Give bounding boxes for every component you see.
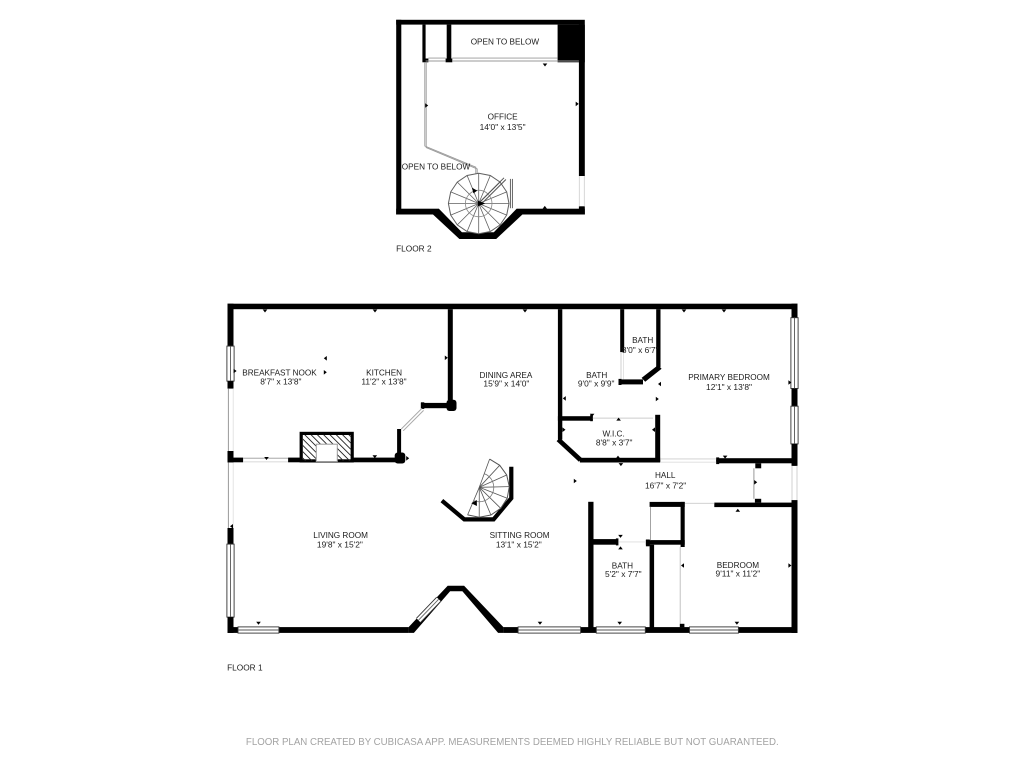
svg-text:19'8" x 15'2": 19'8" x 15'2": [317, 539, 363, 549]
svg-text:9'11" x 11'2": 9'11" x 11'2": [716, 569, 761, 579]
svg-text:8'7" x 13'8": 8'7" x 13'8": [260, 376, 301, 386]
svg-text:HALL: HALL: [655, 471, 676, 480]
svg-text:16'7" x 7'2": 16'7" x 7'2": [645, 480, 686, 490]
svg-text:13'1" x 15'2": 13'1" x 15'2": [496, 539, 542, 549]
svg-text:PRIMARY BEDROOM: PRIMARY BEDROOM: [688, 373, 770, 382]
svg-text:5'2" x 7'7": 5'2" x 7'7": [605, 569, 642, 579]
svg-text:15'9" x 14'0": 15'9" x 14'0": [483, 378, 529, 388]
svg-text:12'1" x 13'8": 12'1" x 13'8": [706, 382, 752, 392]
svg-text:11'2" x 13'8": 11'2" x 13'8": [361, 376, 406, 386]
svg-text:OFFICE: OFFICE: [488, 112, 519, 121]
svg-text:9'0" x 9'9": 9'0" x 9'9": [578, 378, 615, 388]
svg-text:FLOOR 1: FLOOR 1: [227, 662, 263, 672]
svg-text:BATH: BATH: [632, 336, 653, 345]
svg-text:14'0" x 13'5": 14'0" x 13'5": [480, 122, 526, 132]
svg-text:8'0" x 6'7": 8'0" x 6'7": [622, 345, 659, 355]
svg-text:FLOOR 2: FLOOR 2: [396, 244, 432, 254]
svg-text:FLOOR PLAN CREATED BY CUBICASA: FLOOR PLAN CREATED BY CUBICASA APP. MEAS…: [246, 737, 779, 748]
svg-text:OPEN TO BELOW: OPEN TO BELOW: [402, 163, 471, 172]
svg-text:8'8" x 3'7": 8'8" x 3'7": [596, 438, 633, 448]
svg-text:OPEN TO BELOW: OPEN TO BELOW: [471, 37, 540, 46]
